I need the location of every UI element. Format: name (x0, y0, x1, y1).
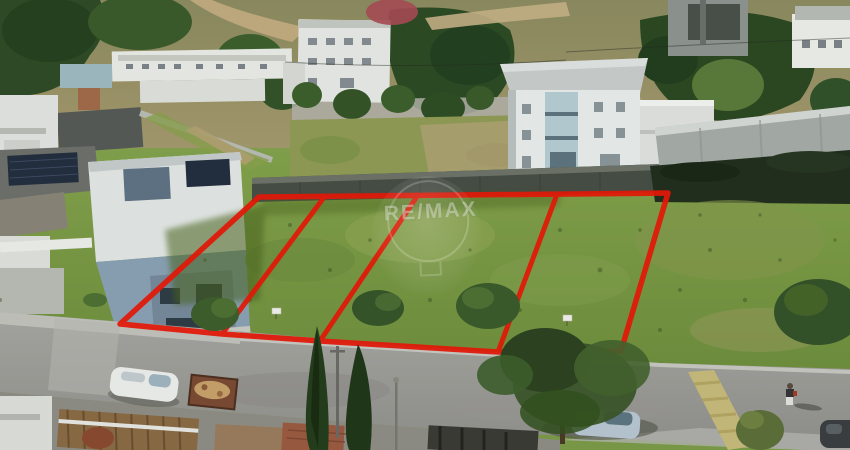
aerial-lot-photo: RE/MAX (0, 0, 850, 450)
photo-tint (0, 0, 850, 450)
scene-canvas (0, 0, 850, 450)
